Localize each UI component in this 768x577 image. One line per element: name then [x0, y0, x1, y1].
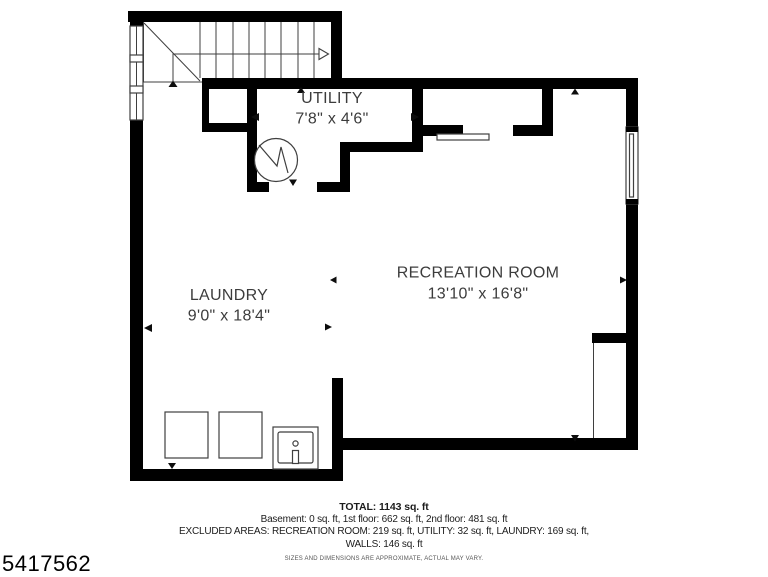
wall-segment: [128, 11, 342, 22]
dim-arrow-down-icon: [289, 180, 297, 187]
dim-arrow-down-icon: [168, 463, 176, 469]
excluded-areas: EXCLUDED AREAS: RECREATION ROOM: 219 sq.…: [0, 526, 768, 538]
dim-arrow-left-icon: [330, 277, 337, 284]
wall-segment: [247, 182, 269, 192]
dim-arrow-right-icon: [325, 324, 332, 331]
furnace-icon: [255, 139, 298, 182]
wall-segment: [331, 11, 342, 89]
wall-segment: [626, 78, 638, 127]
plan-id: 5417562: [2, 551, 91, 577]
wall-segment: [332, 378, 343, 481]
wall-segment: [626, 204, 638, 450]
stairs: [144, 22, 329, 82]
wall-segment: [202, 78, 638, 89]
wall-segment: [247, 89, 257, 192]
floor-areas: Basement: 0 sq. ft, 1st floor: 662 sq. f…: [0, 514, 768, 526]
floorplan-drawing: UTILITY 7'8" x 4'6" LAUNDRY 9'0" x 18'4"…: [0, 0, 768, 576]
wall-segment: [340, 142, 423, 152]
dryer-icon: [219, 412, 262, 458]
recreation-room-name: RECREATION ROOM: [397, 265, 559, 282]
area-summary: TOTAL: 1143 sq. ft Basement: 0 sq. ft, 1…: [0, 501, 768, 563]
dim-arrow-up-icon: [169, 81, 178, 88]
utility-room-dimensions: 7'8" x 4'6": [295, 111, 368, 128]
disclaimer: SIZES AND DIMENSIONS ARE APPROXIMATE, AC…: [0, 555, 768, 563]
right-window: [626, 127, 638, 204]
dim-arrow-left-icon: [144, 324, 152, 332]
wall-segment: [130, 11, 143, 26]
total-area: TOTAL: 1143 sq. ft: [0, 501, 768, 514]
washer-icon: [165, 412, 208, 458]
left-window: [130, 26, 143, 120]
stair-treads: [200, 22, 314, 78]
walls: [128, 11, 638, 481]
floorplan-page: { "plan": { "id": "5417562", "rooms": { …: [0, 0, 768, 576]
laundry-room-name: LAUNDRY: [190, 287, 268, 304]
wall-segment: [130, 120, 143, 481]
wall-segment: [337, 438, 638, 450]
dim-arrow-up-icon: [571, 89, 579, 95]
recreation-room-dimensions: 13'10" x 16'8": [428, 286, 529, 303]
laundry-room-dimensions: 9'0" x 18'4": [188, 308, 270, 325]
wall-segment: [202, 123, 257, 132]
wall-segment: [412, 89, 423, 152]
walls-area: WALLS: 146 sq. ft: [0, 539, 768, 551]
wall-segment: [130, 469, 343, 481]
arrow-head-icon: [319, 49, 329, 60]
dim-arrow-right-icon: [620, 277, 627, 284]
laundry-sink-icon: [273, 427, 318, 469]
sliding-door: [437, 134, 489, 140]
wall-segment: [592, 333, 626, 343]
wall-segment: [542, 89, 553, 136]
utility-room-name: UTILITY: [301, 90, 363, 107]
